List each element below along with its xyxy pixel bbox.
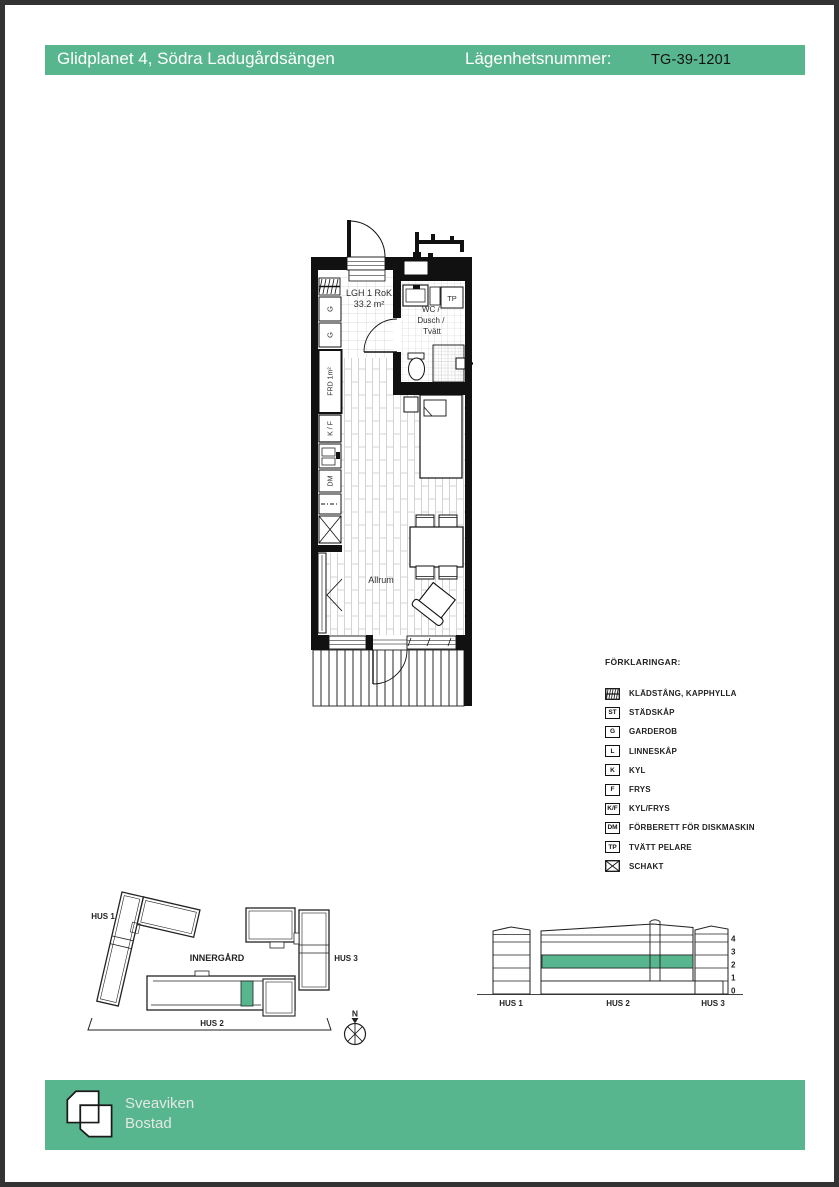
pillow [424,400,446,416]
section-marker-icon [415,232,464,253]
shaft-in-wall [404,261,428,275]
footer-bar: Sveaviken Bostad [45,1080,805,1150]
legend-title: FÖRKLARINGAR: [605,657,815,667]
legend-item: DM FÖRBERETT FÖR DISKMASKIN [605,818,815,837]
dishwasher-label: DM [328,475,335,486]
level-1: 1 [731,974,736,983]
balcony-deck [313,650,464,706]
north-compass-icon [345,1018,366,1045]
entry-door-leaf [347,220,351,257]
unit-area-label: 33.2 m² [354,299,385,309]
building-hus2 [147,971,295,1016]
floor-plan-drawing: LGH 1 RoK 33.2 m² WC / Dusch / Tvätt TP … [285,205,505,725]
elev-hus3-label: HUS 3 [701,999,725,1008]
k-icon: K [605,764,620,776]
legend-item: K/F KYL/FRYS [605,799,815,818]
elevation-hus1 [493,927,530,994]
coat-rack-icon [605,688,620,700]
f-icon: F [605,784,620,796]
st-icon: ST [605,707,620,719]
hus1-label: HUS 1 [91,912,115,921]
elev-hus2-label: HUS 2 [606,999,630,1008]
l-icon: L [605,745,620,757]
brand-name: Sveaviken Bostad [125,1094,194,1135]
apartment-number-label: Lägenhetsnummer: [465,49,611,69]
building-elevation: HUS 1 HUS 2 HUS 3 4 3 2 1 0 [475,905,775,1020]
legend-item: TP TVÄTT PELARE [605,838,815,857]
page-title: Glidplanet 4, Södra Ladugårdsängen [57,49,335,69]
north-label: N [352,1009,358,1019]
level-3: 3 [731,948,736,957]
kf-icon: K/F [605,803,620,815]
wardrobe-label: G [326,332,335,338]
highlighted-floor [542,955,693,968]
chair [439,566,457,579]
dm-icon: DM [605,822,620,834]
g-icon: G [605,726,620,738]
legend-item: KLÄDSTÅNG, KAPPHYLLA [605,684,815,703]
kitchen-strip [319,278,342,543]
unit-type-label: LGH 1 RoK [346,288,392,298]
legend-item: SCHAKT [605,857,815,876]
sveaviken-logo [63,1089,117,1141]
level-4: 4 [731,935,736,944]
hus2-label: HUS 2 [200,1019,224,1028]
toilet [409,358,425,380]
nightstand [404,397,418,412]
elevation-hus3 [695,926,728,994]
level-2: 2 [731,961,736,970]
allrum-label: Allrum [368,575,394,585]
legend-item: L LINNESKÅP [605,742,815,761]
fridge-label: K / F [328,421,335,436]
shower-fixture [456,358,465,369]
highlighted-apartment [241,981,253,1006]
hus3-label: HUS 3 [334,954,358,963]
entry-door-swing [351,221,385,257]
level-0: 0 [731,987,736,996]
storage-label: FRD 1m² [328,367,335,396]
apartment-number-value: TG-39-1201 [651,52,731,68]
dining-table [410,527,463,567]
shaft-icon [605,860,620,872]
legend-item: F FRYS [605,780,815,799]
chair [439,515,457,528]
tp-label: TP [447,294,457,303]
floorplan-document-page: Glidplanet 4, Södra Ladugårdsängen Lägen… [0,0,839,1187]
legend-item: K KYL [605,761,815,780]
tp-icon: TP [605,841,620,853]
chair [416,566,434,579]
elev-hus1-label: HUS 1 [499,999,523,1008]
legend-item: G GARDEROB [605,722,815,741]
site-plan: HUS 1 INNERGÅRD HUS 3 HUS 2 N [65,875,385,1055]
chair [416,515,434,528]
elevation-hus2 [541,920,703,994]
legend: FÖRKLARINGAR: KLÄDSTÅNG, KAPPHYLLA ST ST… [605,657,815,876]
innergard-label: INNERGÅRD [190,953,245,963]
header-bar: Glidplanet 4, Södra Ladugårdsängen Lägen… [45,45,805,75]
wardrobe-label: G [326,306,335,312]
legend-item: ST STÄDSKÅP [605,703,815,722]
